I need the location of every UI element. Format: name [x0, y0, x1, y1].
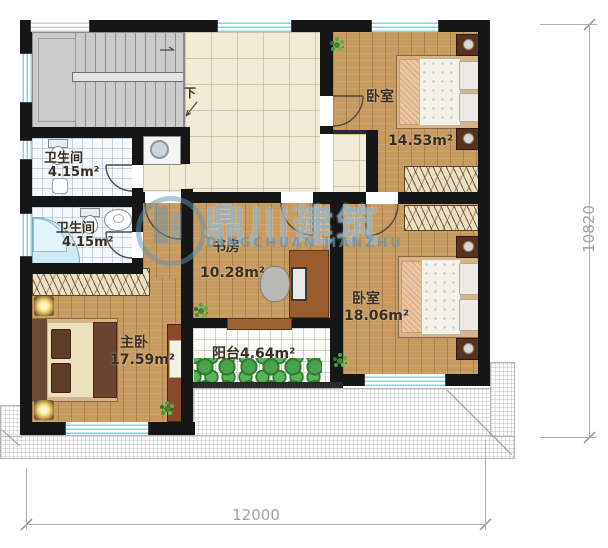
room-area-bathroom-lower: 4.15m²: [62, 235, 113, 250]
room-area-bedroom-upper: 14.53m²: [388, 133, 453, 149]
room-area-study: 10.28m²: [200, 265, 265, 281]
door-swing-and-annotation-lines: [0, 0, 608, 548]
room-area-bathroom-upper: 4.15m²: [48, 165, 99, 180]
dimension-bottom-label: 12000: [156, 506, 356, 524]
stairs-down-label: 下: [184, 84, 196, 101]
extension-line: [26, 468, 27, 530]
extension-line: [485, 440, 486, 530]
floor-plan: 卫生间 4.15m² 卫生间 4.15m² 卧室 14.53m² 卧室 18.0…: [0, 0, 608, 548]
room-area-bedroom-lower: 18.06m²: [344, 308, 409, 324]
room-label-bedroom-lower: 卧室: [352, 288, 380, 308]
dimension-line-bottom: [26, 524, 486, 525]
room-label-master-bedroom: 主卧: [120, 332, 148, 352]
room-label-balcony: 阳台4.64m²: [212, 343, 295, 363]
room-label-bathroom-lower: 卫生间: [56, 217, 95, 236]
room-label-bathroom-upper: 卫生间: [44, 147, 83, 166]
room-label-bedroom-upper: 卧室: [366, 86, 394, 106]
room-area-master-bedroom: 17.59m²: [110, 352, 175, 368]
room-label-study: 书房: [212, 236, 240, 256]
dimension-right-label: 10820: [580, 183, 598, 275]
